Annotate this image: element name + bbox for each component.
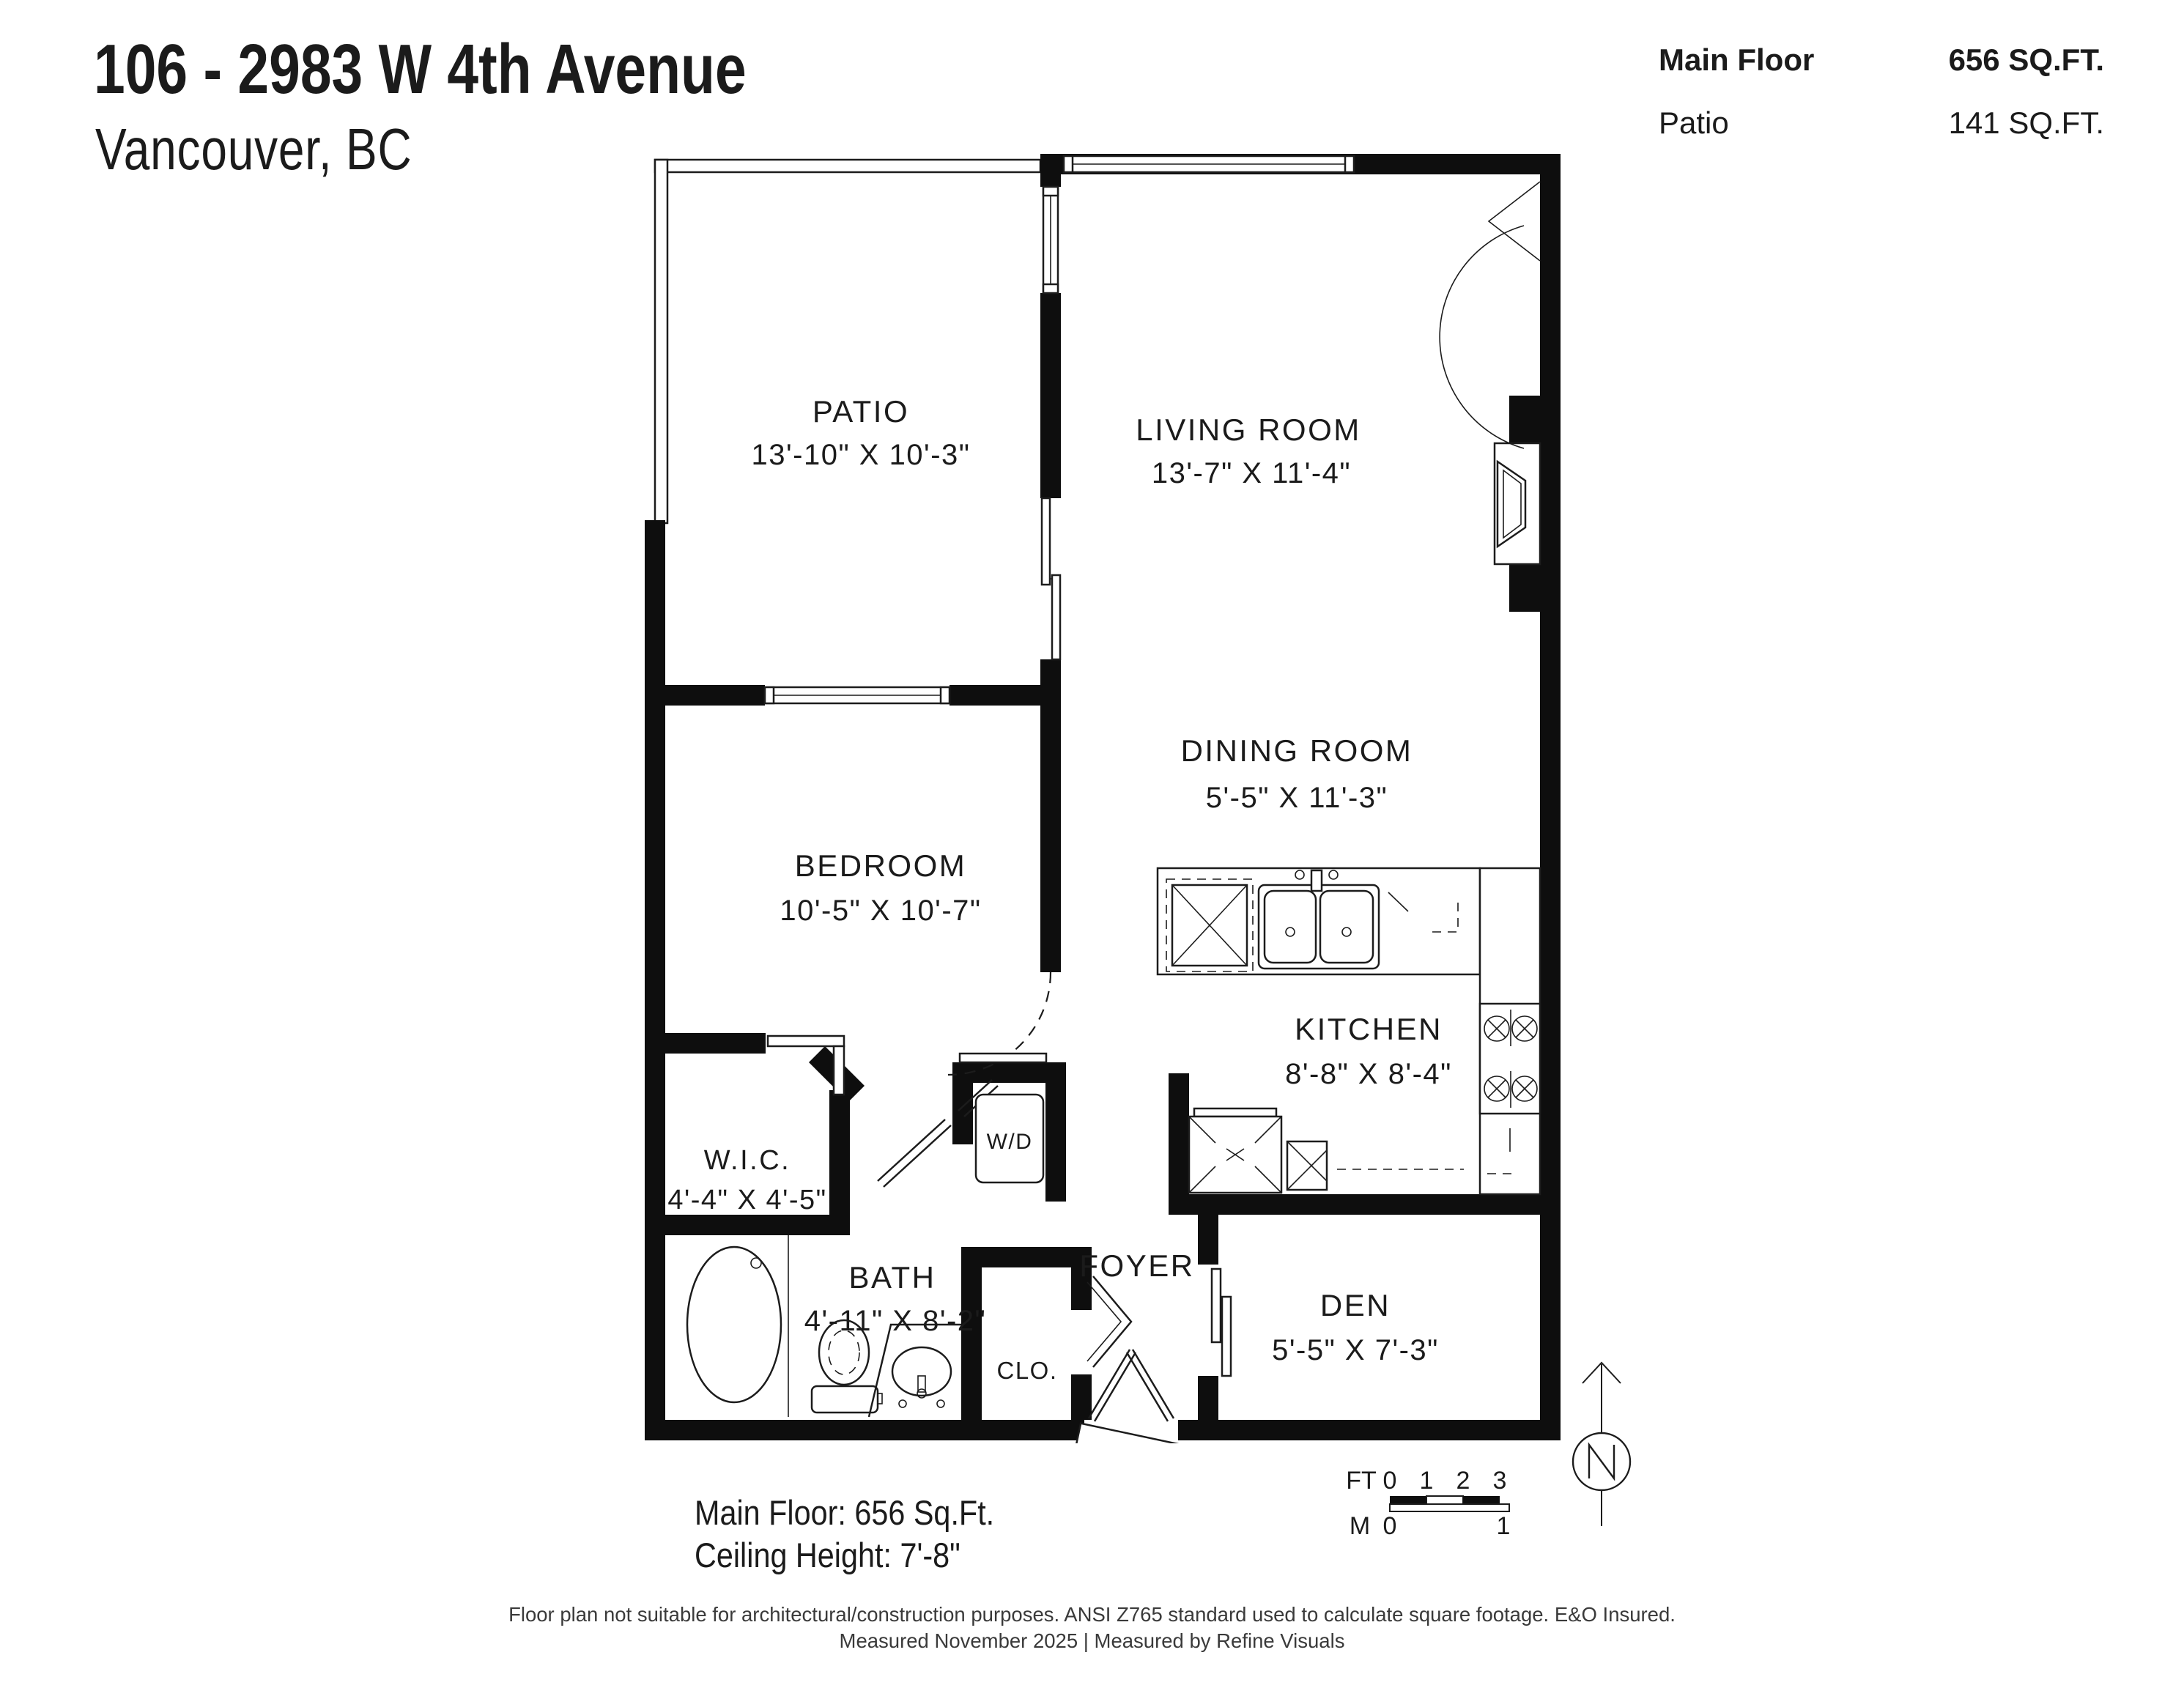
- room-dims-living: 13'-7" X 11'-4": [1152, 457, 1351, 489]
- room-dims-dining: 5'-5" X 11'-3": [1206, 782, 1388, 814]
- room-label-patio: PATIO: [812, 394, 909, 429]
- room-label-laundry: W/D: [987, 1130, 1033, 1154]
- area-value-patio: 141 SQ.FT.: [1949, 105, 2104, 141]
- north-compass: [1573, 1363, 1630, 1526]
- room-dims-wic: 4'-4" X 4'-5": [667, 1185, 826, 1215]
- floor-stats: Main Floor: 656 Sq.Ft. Ceiling Height: 7…: [695, 1492, 1035, 1577]
- scale-m-1: 1: [1497, 1512, 1511, 1539]
- room-label-foyer: FOYER: [1079, 1248, 1194, 1283]
- page-subtitle-text: Vancouver, BC: [95, 116, 412, 183]
- dishwasher: [1189, 1108, 1281, 1193]
- area-label-main-floor: Main Floor: [1659, 42, 1814, 78]
- scale-ft-label: FT: [1346, 1467, 1377, 1495]
- page-title-text: 106 - 2983 W 4th Avenue: [94, 29, 747, 110]
- scale-ft-3: 3: [1493, 1467, 1507, 1495]
- page-subtitle: Vancouver, BC: [95, 116, 492, 183]
- room-dims-bedroom: 10'-5" X 10'-7": [780, 895, 981, 927]
- scale-ft-2: 2: [1456, 1467, 1470, 1495]
- scale-m-0: 0: [1383, 1512, 1397, 1539]
- scale-ft-1: 1: [1420, 1467, 1434, 1495]
- page-title: 106 - 2983 W 4th Avenue: [94, 29, 909, 110]
- room-dims-kitchen: 8'-8" X 8'-4": [1285, 1058, 1452, 1090]
- fireplace: [1440, 226, 1540, 564]
- room-label-den: DEN: [1320, 1288, 1391, 1322]
- floorplan-page: { "header": { "title": "106 - 2983 W 4th…: [0, 0, 2184, 1688]
- bathtub: [687, 1235, 788, 1417]
- area-label-patio: Patio: [1659, 105, 1729, 141]
- bay-window: [1489, 182, 1540, 261]
- floor-stats-line1: Main Floor: 656 Sq.Ft.: [695, 1492, 994, 1534]
- kitchen-sink: [1259, 870, 1379, 969]
- disclaimer-line2: Measured November 2025 | Measured by Ref…: [0, 1628, 2184, 1654]
- room-dims-bath: 4'-11" X 8'-2": [804, 1305, 986, 1337]
- closet-door: [1087, 1276, 1131, 1367]
- scale-m-label: M: [1350, 1512, 1370, 1539]
- scale-bar: FT 0 1 2 3 M 0 1: [1346, 1467, 1510, 1539]
- room-label-living: LIVING ROOM: [1136, 412, 1361, 447]
- floor-stats-line2: Ceiling Height: 7'-8": [695, 1534, 960, 1577]
- room-dims-patio: 13'-10" X 10'-3": [752, 439, 971, 471]
- wd-shelf: [960, 1054, 1046, 1062]
- room-label-closet: CLO.: [996, 1357, 1057, 1384]
- den-pocket-door: [1212, 1269, 1231, 1376]
- room-label-wic: W.I.C.: [704, 1145, 791, 1176]
- area-summary-row-main-floor: Main Floor 656 SQ.FT.: [1659, 42, 2104, 78]
- room-label-bedroom: BEDROOM: [795, 848, 967, 883]
- room-label-kitchen: KITCHEN: [1295, 1012, 1443, 1046]
- area-summary: Main Floor 656 SQ.FT. Patio 141 SQ.FT.: [1659, 42, 2104, 169]
- room-label-bath: BATH: [849, 1260, 936, 1295]
- oven-cabinet: [1287, 1141, 1464, 1190]
- fridge: [1166, 879, 1253, 971]
- map-tools: FT 0 1 2 3 M 0 1: [1333, 1341, 1670, 1539]
- bathroom-sink: [869, 1325, 961, 1417]
- room-label-dining: DINING ROOM: [1181, 733, 1413, 768]
- disclaimer-line1: Floor plan not suitable for architectura…: [0, 1602, 2184, 1628]
- sliding-door: [1042, 498, 1060, 659]
- scale-ft-0: 0: [1383, 1467, 1397, 1495]
- area-value-main-floor: 656 SQ.FT.: [1949, 42, 2104, 78]
- floorplan-drawing: PATIO 13'-10" X 10'-3" LIVING ROOM 13'-7…: [645, 154, 1561, 1443]
- disclaimer: Floor plan not suitable for architectura…: [0, 1602, 2184, 1654]
- area-summary-row-patio: Patio 141 SQ.FT.: [1659, 105, 2104, 141]
